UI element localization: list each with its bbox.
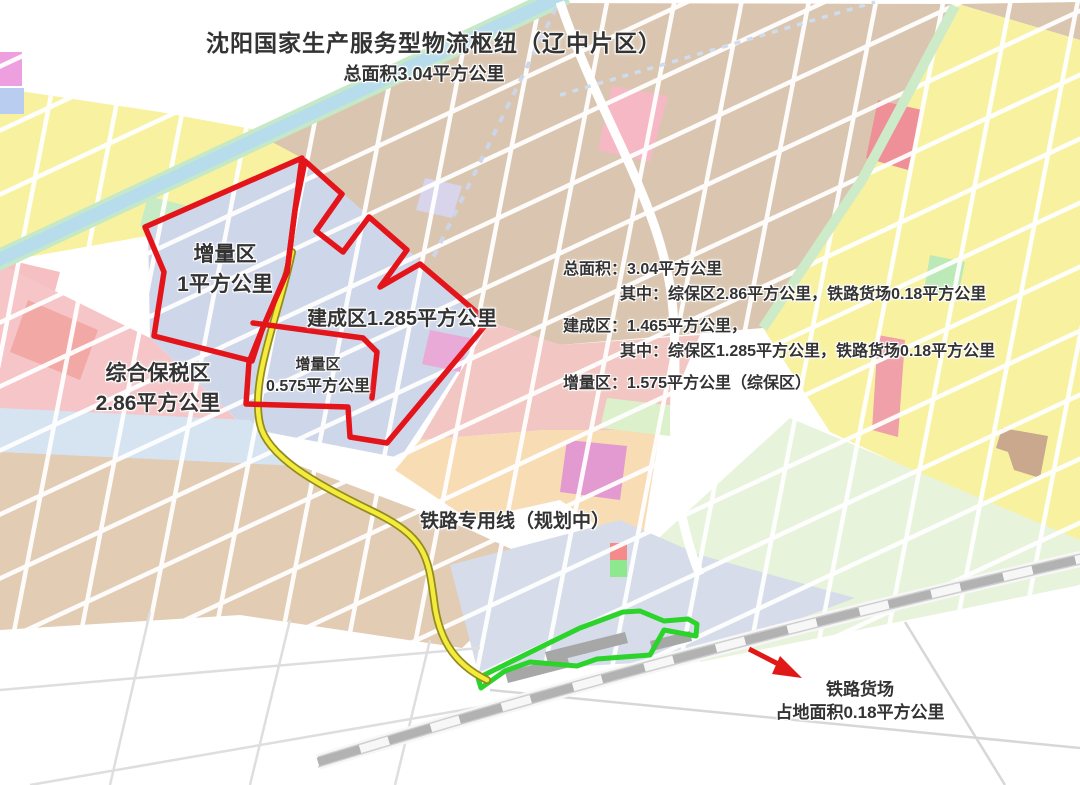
stats-increment: 增量区：1.575平方公里（综保区）	[563, 374, 995, 393]
planning-map: 沈阳国家生产服务型物流枢纽（辽中片区） 总面积3.04平方公里 增量区 1平方公…	[0, 0, 1080, 785]
zone-bonded-area: 2.86平方公里	[96, 389, 221, 419]
map-title: 沈阳国家生产服务型物流枢纽（辽中片区）	[206, 24, 662, 58]
zone-increment-south-area: 0.575平方公里	[266, 376, 370, 398]
stats-built-detail: 其中：综保区1.285平方公里，铁路货场0.18平方公里	[620, 342, 995, 361]
map-subtitle: 总面积3.04平方公里	[343, 60, 504, 86]
rail-spur-label: 铁路专用线（规划中）	[420, 506, 610, 533]
stats-built: 建成区：1.465平方公里，	[563, 317, 995, 336]
zone-label-increment-south: 增量区 0.575平方公里	[266, 354, 370, 398]
zone-increment-west-area: 1平方公里	[177, 270, 273, 300]
freight-yard-name: 铁路货场	[775, 678, 944, 701]
freight-yard-label: 铁路货场 占地面积0.18平方公里	[775, 678, 944, 724]
zone-increment-south-name: 增量区	[266, 354, 370, 376]
zone-increment-west-name: 增量区	[177, 240, 273, 270]
zone-bonded-name: 综合保税区	[96, 359, 221, 389]
zone-label-increment-west: 增量区 1平方公里	[177, 240, 273, 300]
freight-yard-area: 占地面积0.18平方公里	[775, 701, 944, 724]
stats-total-detail: 其中：综保区2.86平方公里，铁路货场0.18平方公里	[620, 285, 995, 304]
stats-total: 总面积：3.04平方公里	[563, 260, 995, 279]
area-stats-block: 总面积：3.04平方公里 其中：综保区2.86平方公里，铁路货场0.18平方公里…	[563, 260, 995, 393]
zone-label-built: 建成区1.285平方公里	[307, 302, 497, 331]
zone-label-bonded: 综合保税区 2.86平方公里	[96, 359, 221, 419]
